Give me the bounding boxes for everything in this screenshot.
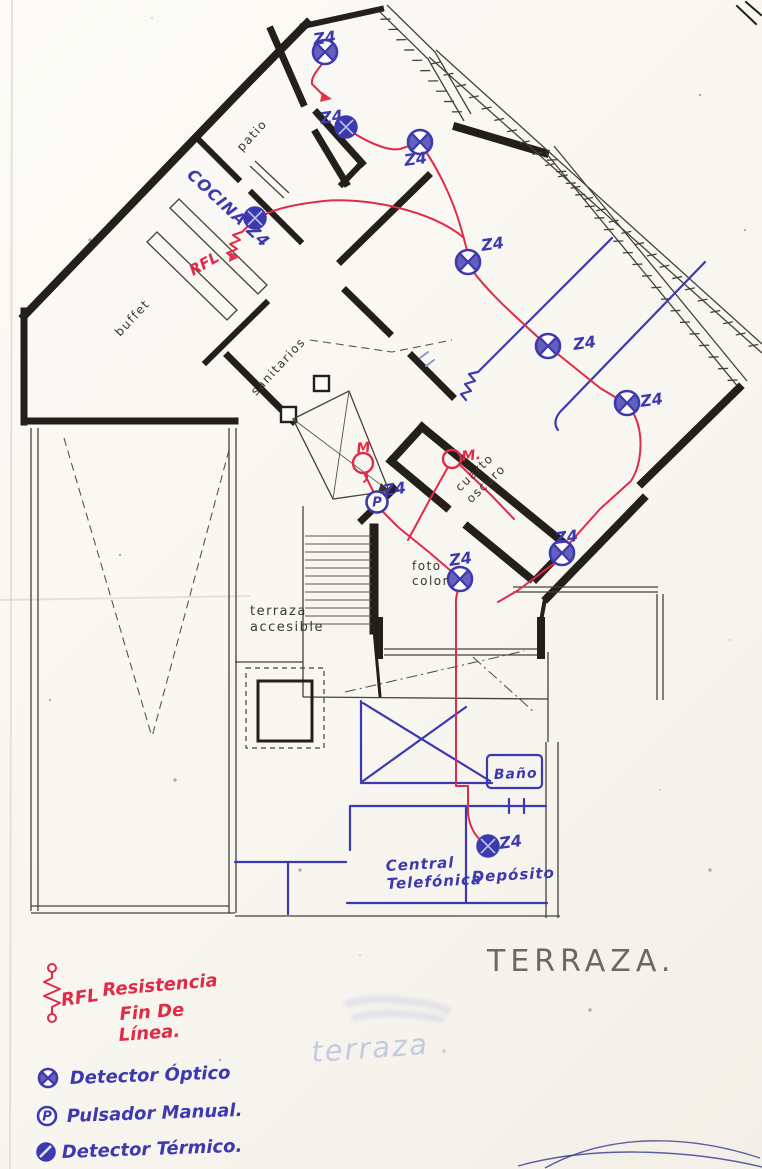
- zone-label: Z4: [497, 831, 523, 853]
- ink-smudge: [345, 999, 450, 1020]
- wall-segment: [384, 649, 538, 655]
- legend-item-pulsador-manual: PPulsador Manual.: [38, 1100, 243, 1127]
- zone-label: Z4: [553, 526, 579, 548]
- wall-segment: [31, 428, 38, 911]
- zone-label: Z4: [402, 148, 428, 170]
- terraza-title: TERRAZA.: [486, 944, 675, 979]
- floor-plan-svg: Z4Z4Z4Z4Z4Z4Z4Z4Z4PZ4 patioCOCINA Z4buff…: [0, 0, 762, 1169]
- red-wiring-line: [320, 92, 332, 102]
- wall-segment: [310, 340, 452, 352]
- zone-label: Z4: [447, 548, 473, 570]
- wall-segment: [380, 12, 464, 121]
- scanned-floor-plan: Z4Z4Z4Z4Z4Z4Z4Z4Z4PZ4 patioCOCINA Z4buff…: [0, 0, 762, 1169]
- scan-speck: [298, 868, 301, 871]
- wall-segment: [305, 536, 372, 624]
- wall-segment: [303, 697, 548, 699]
- pulsador-letter: P: [372, 496, 382, 511]
- terraza-faint-title: terraza .: [310, 1025, 452, 1069]
- room-label-sanitarios: sanitarios: [248, 335, 308, 398]
- scan-speck: [639, 469, 640, 470]
- scan-speck: [219, 1059, 221, 1061]
- detector-solid: [477, 835, 499, 857]
- wall-segment: [657, 594, 663, 700]
- room-label-bano: Baño: [494, 765, 538, 783]
- scan-speck: [359, 954, 360, 955]
- scan-speck: [699, 94, 701, 96]
- legend-code: RFL: [60, 985, 100, 1011]
- zone-label: Z4: [479, 233, 505, 255]
- walls-layer: [24, 2, 762, 918]
- scan-speck: [744, 229, 746, 231]
- wall-segment: [341, 176, 428, 261]
- scan-speck: [49, 699, 51, 701]
- wall-segment: [31, 906, 235, 913]
- room-label-terraza-accesible: terrazaaccesible: [250, 604, 324, 635]
- red-wiring-line: [554, 351, 620, 400]
- legend-item-detector-optico: Detector Óptico: [39, 1061, 231, 1089]
- room-label-text: sanitarios: [248, 335, 308, 398]
- legend-label: Línea.: [118, 1021, 181, 1046]
- blue-ink-line: [235, 862, 346, 914]
- wall-segment: [229, 428, 236, 913]
- zone-label: Z4: [311, 27, 337, 49]
- wall-segment: [258, 681, 312, 741]
- detectors-layer: Z4Z4Z4Z4Z4Z4Z4Z4Z4PZ4: [244, 27, 664, 857]
- scan-speck: [729, 639, 730, 640]
- zone-label: Z4: [318, 106, 344, 128]
- room-label-text: terraza: [250, 604, 307, 619]
- room-label-central-telefonica: CentralTelefónica: [385, 852, 482, 893]
- room-label-text: Telefónica: [386, 870, 482, 893]
- red-wiring-line: [567, 411, 641, 546]
- legend-label: Detector Óptico: [69, 1061, 230, 1089]
- wall-segment: [429, 57, 762, 353]
- wall-segment: [379, 621, 541, 655]
- room-labels-layer: patioCOCINA Z4buffetsanitarioscuartooscu…: [112, 117, 555, 893]
- scan-speck: [151, 17, 152, 18]
- pulsador-letter: P: [42, 1110, 52, 1125]
- room-label-text: foto: [412, 559, 442, 573]
- red-wiring-line: [352, 132, 412, 149]
- wall-segment: [737, 2, 761, 24]
- room-label-deposito: Depósito: [471, 864, 555, 886]
- zone-label: Z4: [381, 478, 407, 500]
- wall-segment: [345, 651, 534, 712]
- room-label-text: patio: [234, 117, 270, 154]
- blue-ink-line: [518, 1152, 762, 1167]
- room-label-buffet: buffet: [112, 297, 153, 339]
- wall-segment: [346, 291, 452, 396]
- legend-layer: RFLResistenciaFin DeLínea.Detector Óptic…: [37, 964, 243, 1163]
- scan-speck: [173, 778, 176, 781]
- legend-label: Pulsador Manual.: [66, 1100, 242, 1127]
- wall-segment: [303, 9, 381, 26]
- zone-label: Z4: [638, 389, 664, 411]
- titles-layer: TERRAZA. terraza .: [310, 944, 675, 1069]
- red-wiring-line: [312, 60, 326, 98]
- scan-speck: [708, 868, 711, 871]
- legend-item-rfl: RFLResistenciaFin DeLínea.: [44, 964, 218, 1046]
- room-label-patio: patio: [234, 117, 270, 154]
- scan-speck: [119, 554, 121, 556]
- legend-label: Resistencia: [102, 970, 219, 1001]
- scan-noise: [49, 17, 746, 1061]
- wall-segment: [314, 376, 329, 391]
- red-marks-layer: MM.RFL: [186, 248, 482, 482]
- room-label-text: Depósito: [471, 864, 555, 886]
- red-mark-label: M.: [461, 447, 482, 465]
- red-wiring-layer: [227, 60, 641, 842]
- scan-speck: [588, 1008, 591, 1011]
- room-label-text: color: [412, 574, 449, 588]
- legend-label: Detector Térmico.: [61, 1136, 242, 1163]
- blue-ink-line: [363, 703, 490, 781]
- detector-optical: [448, 567, 472, 591]
- wall-segment: [342, 163, 362, 184]
- wall-segment: [436, 50, 762, 344]
- room-label-text: accesible: [250, 620, 324, 635]
- scan-speck: [659, 789, 660, 790]
- wall-segment: [391, 427, 422, 461]
- room-label-text: Baño: [494, 765, 538, 783]
- wall-segment: [513, 587, 658, 592]
- wall-segment: [250, 161, 289, 198]
- wall-segment: [64, 438, 229, 737]
- detector-optical: [536, 334, 560, 358]
- room-label-text: buffet: [112, 297, 153, 339]
- detector-optical: [456, 250, 480, 274]
- detector-optical: [615, 391, 639, 415]
- legend-item-detector-termico: Detector Térmico.: [37, 1136, 243, 1163]
- decoration: [10, 0, 12, 1169]
- blue-ink-line: [461, 372, 478, 400]
- wall-segment: [546, 742, 558, 918]
- red-mark-label: M: [356, 440, 372, 457]
- red-mark-circle-tail: [353, 453, 373, 482]
- red-wiring-line: [456, 588, 483, 842]
- red-wiring-line: [472, 270, 542, 341]
- zone-label: Z4: [571, 332, 597, 354]
